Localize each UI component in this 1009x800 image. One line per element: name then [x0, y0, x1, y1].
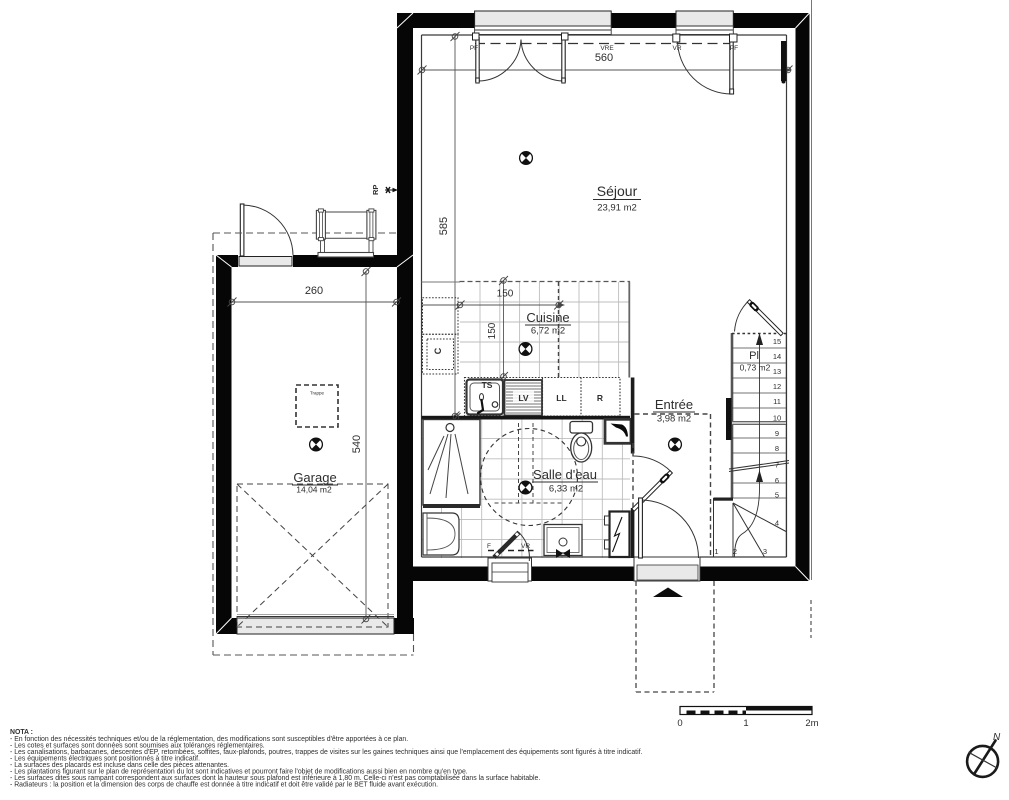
- svg-text:NOTA :: NOTA :: [10, 729, 33, 736]
- svg-text:VR: VR: [672, 45, 681, 52]
- svg-text:540: 540: [351, 435, 363, 453]
- svg-text:5: 5: [775, 491, 779, 500]
- svg-text:1: 1: [714, 547, 718, 556]
- svg-text:LL: LL: [556, 393, 566, 403]
- svg-text:3,98 m2: 3,98 m2: [657, 414, 691, 425]
- svg-text:150: 150: [487, 322, 498, 339]
- svg-text:260: 260: [305, 285, 323, 297]
- svg-text:4: 4: [775, 519, 779, 528]
- svg-text:Entrée: Entrée: [655, 397, 693, 412]
- svg-text:Salle d'eau: Salle d'eau: [533, 467, 597, 482]
- svg-text:13: 13: [773, 367, 781, 376]
- svg-text:N: N: [993, 732, 1001, 743]
- svg-text:6,33 m2: 6,33 m2: [549, 484, 583, 495]
- svg-text:LV: LV: [518, 393, 529, 403]
- svg-text:Cuisine: Cuisine: [526, 310, 569, 325]
- svg-text:23,91 m2: 23,91 m2: [597, 203, 637, 214]
- svg-text:2: 2: [733, 547, 737, 556]
- svg-text:F: F: [487, 543, 491, 550]
- svg-text:11: 11: [773, 397, 781, 406]
- svg-text:585: 585: [438, 217, 450, 235]
- svg-text:6,72 m2: 6,72 m2: [531, 326, 565, 337]
- svg-text:150: 150: [497, 289, 514, 300]
- svg-text:PF: PF: [470, 45, 478, 52]
- svg-text:560: 560: [595, 52, 613, 64]
- svg-text:10: 10: [773, 414, 781, 423]
- svg-text:- Radiateurs : la position et: - Radiateurs : la position et la dimensi…: [10, 782, 438, 789]
- svg-text:6: 6: [775, 476, 779, 485]
- svg-text:3: 3: [763, 547, 767, 556]
- svg-text:Séjour: Séjour: [597, 183, 638, 199]
- svg-text:8: 8: [775, 444, 779, 453]
- svg-text:0,73 m2: 0,73 m2: [740, 363, 771, 373]
- svg-text:RP: RP: [371, 185, 380, 195]
- svg-text:14: 14: [773, 352, 781, 361]
- svg-text:Pl: Pl: [749, 350, 759, 362]
- svg-text:PF: PF: [730, 45, 738, 52]
- svg-text:Garage: Garage: [293, 470, 336, 485]
- svg-text:Trappe: Trappe: [310, 391, 325, 396]
- svg-text:15: 15: [773, 337, 781, 346]
- svg-text:9: 9: [775, 429, 779, 438]
- svg-text:14,04 m2: 14,04 m2: [296, 485, 332, 495]
- svg-text:12: 12: [773, 382, 781, 391]
- svg-text:VRE: VRE: [600, 45, 614, 52]
- svg-text:1: 1: [743, 718, 748, 729]
- svg-text:2m: 2m: [805, 718, 818, 729]
- svg-text:C: C: [433, 347, 443, 354]
- svg-text:TS: TS: [482, 380, 493, 390]
- svg-text:R: R: [597, 393, 603, 403]
- svg-text:7: 7: [775, 461, 779, 470]
- svg-text:0: 0: [677, 718, 682, 729]
